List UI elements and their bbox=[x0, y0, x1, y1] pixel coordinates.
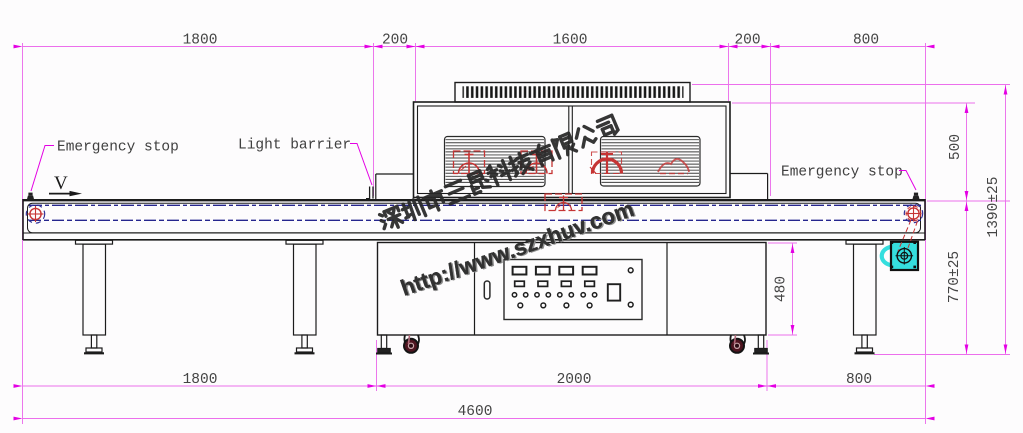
svg-text:Light barrier: Light barrier bbox=[238, 138, 351, 154]
svg-text:1800: 1800 bbox=[183, 372, 218, 388]
svg-text:770±25: 770±25 bbox=[947, 251, 963, 303]
svg-text:480: 480 bbox=[774, 276, 790, 302]
svg-text:1390±25: 1390±25 bbox=[986, 177, 1002, 238]
svg-text:500: 500 bbox=[948, 134, 964, 160]
svg-text:V: V bbox=[54, 173, 68, 194]
svg-text:200: 200 bbox=[734, 33, 760, 49]
svg-text:1600: 1600 bbox=[553, 33, 588, 49]
svg-text:Emergency stop: Emergency stop bbox=[57, 140, 179, 156]
svg-text:4600: 4600 bbox=[458, 404, 493, 420]
svg-text:2000: 2000 bbox=[557, 372, 592, 388]
svg-text:800: 800 bbox=[853, 33, 879, 49]
svg-text:Emergency stop: Emergency stop bbox=[781, 165, 903, 181]
svg-text:1800: 1800 bbox=[183, 33, 218, 49]
svg-text:200: 200 bbox=[382, 33, 408, 49]
svg-text:http://www.szxhuv.com: http://www.szxhuv.com bbox=[397, 196, 637, 301]
svg-text:800: 800 bbox=[846, 372, 872, 388]
